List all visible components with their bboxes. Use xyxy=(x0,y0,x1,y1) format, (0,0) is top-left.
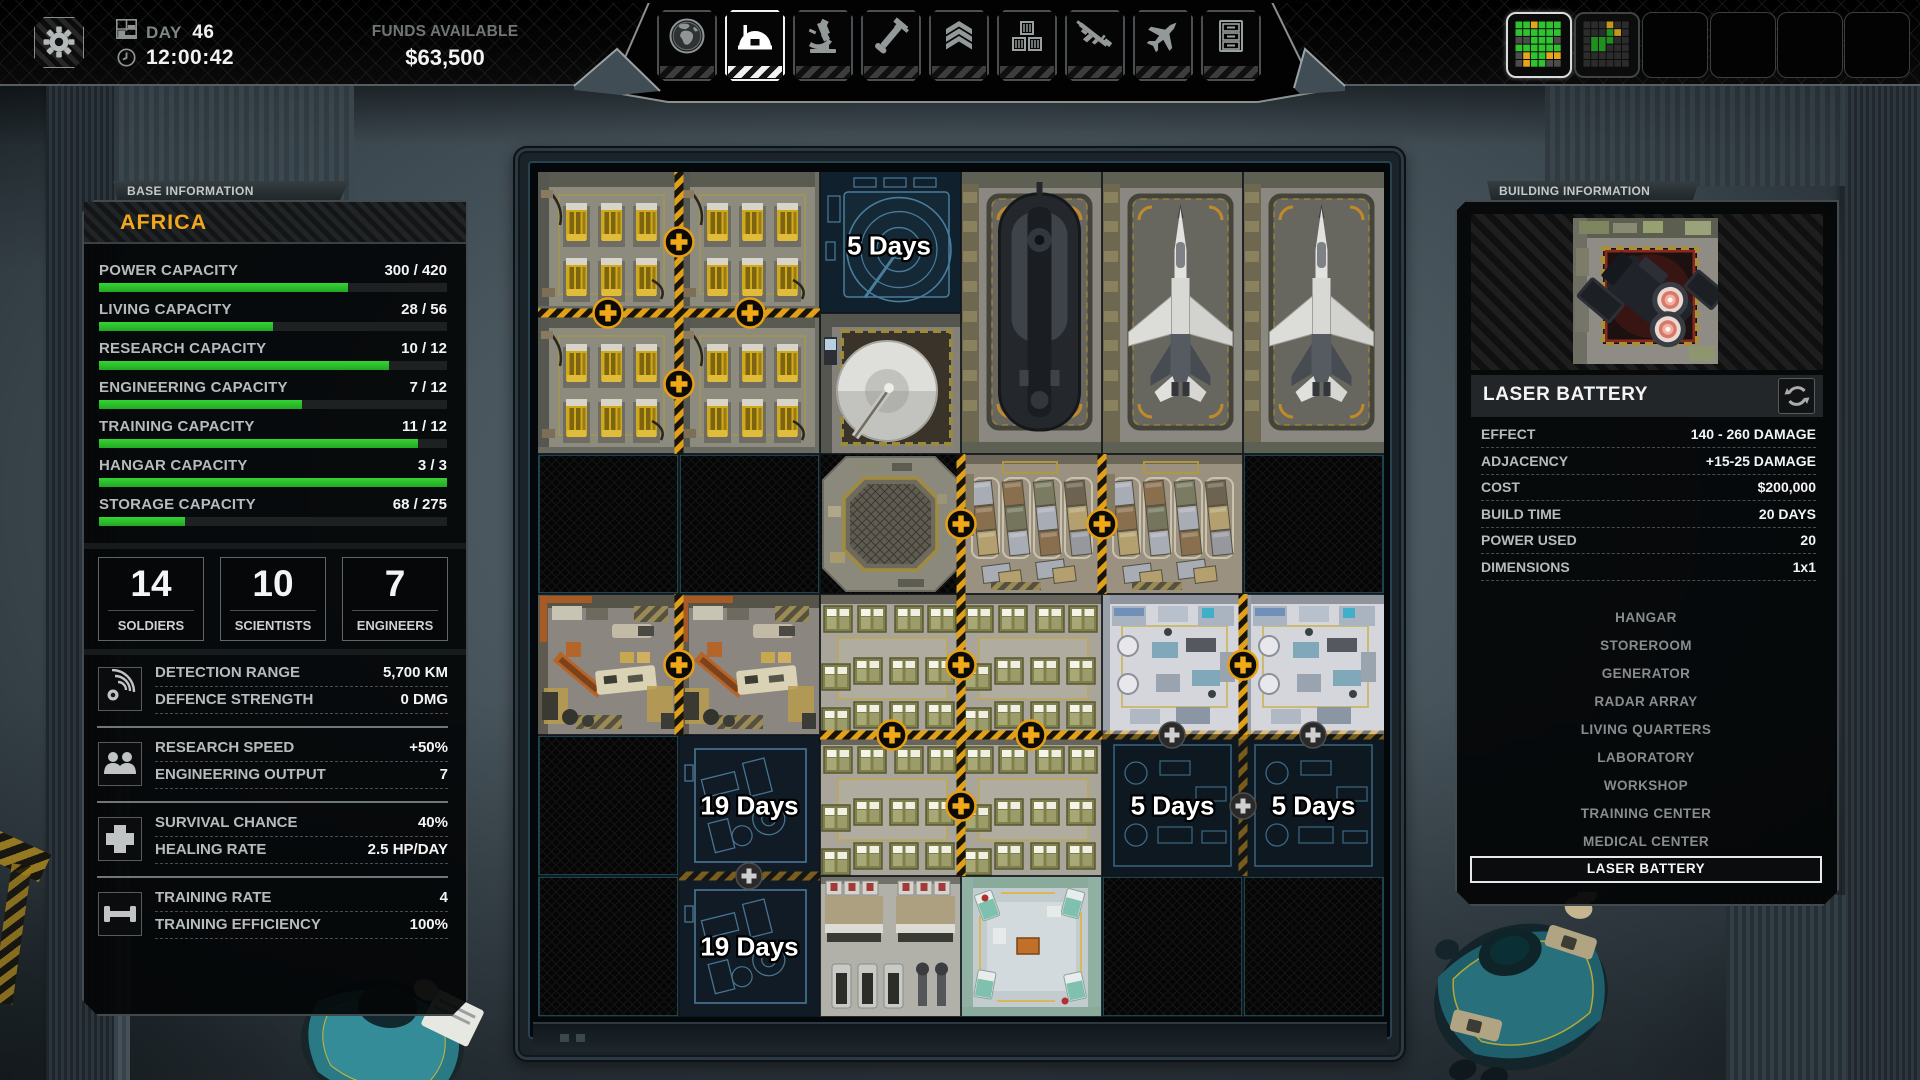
svg-text:5 Days: 5 Days xyxy=(847,230,931,260)
svg-text:5 Days: 5 Days xyxy=(1131,791,1215,821)
svg-text:19 Days: 19 Days xyxy=(700,932,798,962)
svg-text:5 Days: 5 Days xyxy=(1272,791,1356,821)
svg-text:19 Days: 19 Days xyxy=(700,791,798,821)
